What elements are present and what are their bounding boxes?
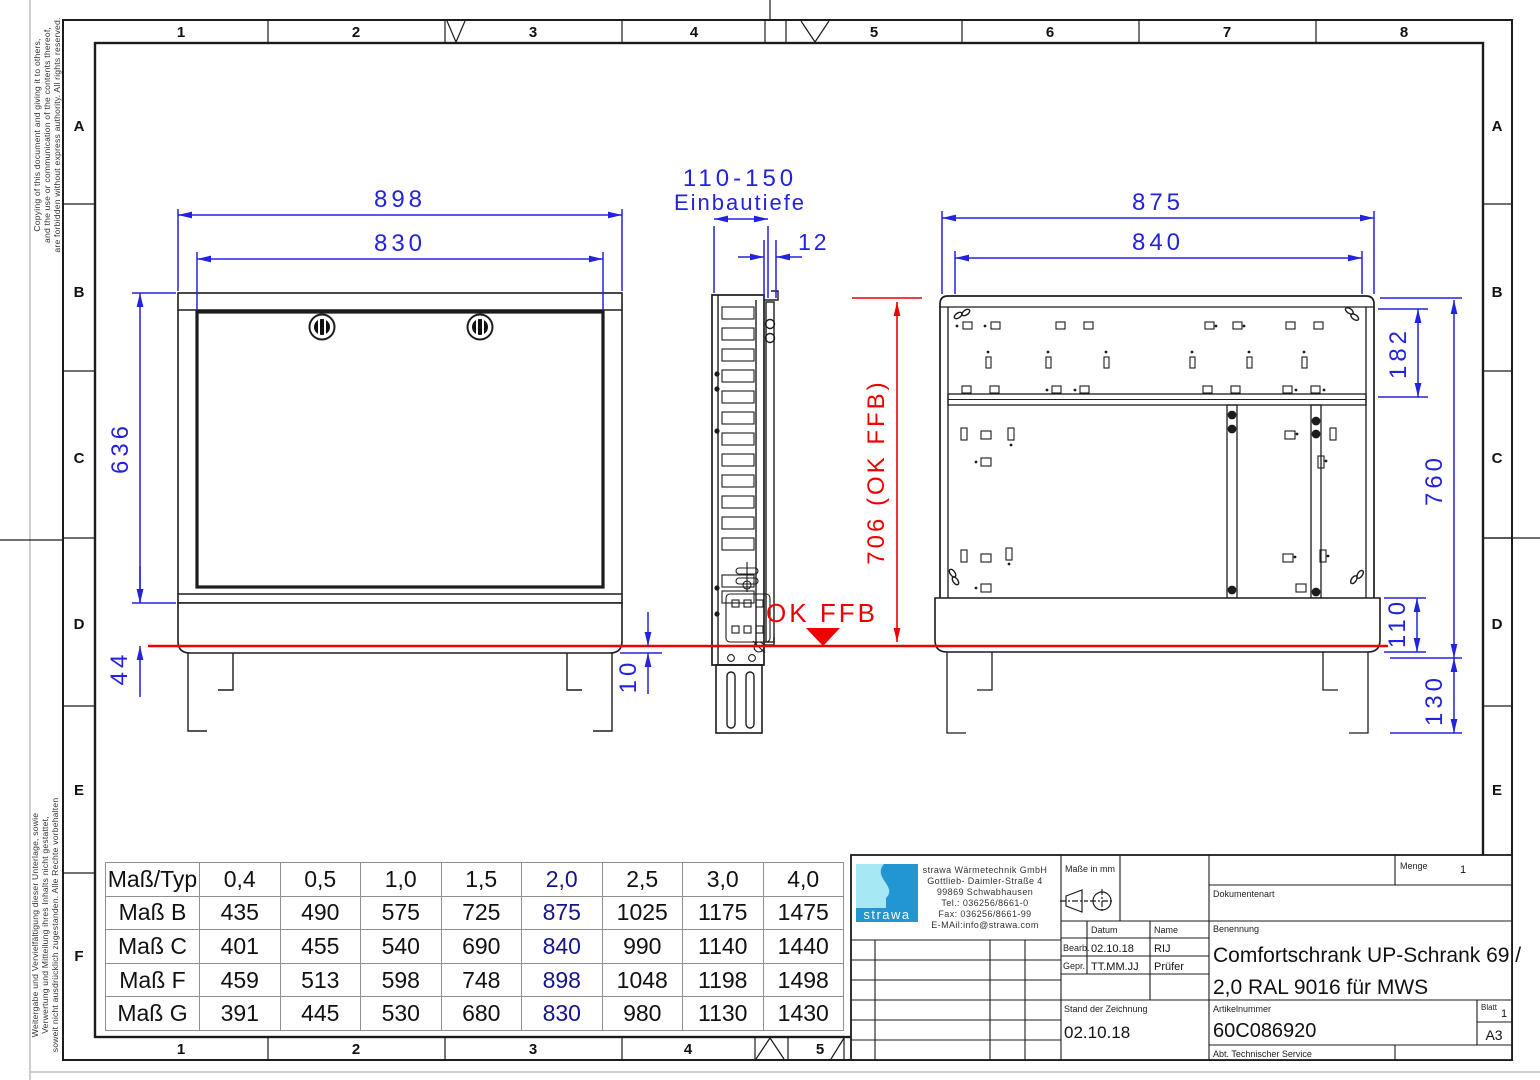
dim-front-outer: 898 bbox=[374, 186, 426, 213]
rear-legs bbox=[947, 652, 1368, 733]
dimensions bbox=[132, 209, 1462, 733]
front-legs bbox=[188, 653, 612, 731]
units-label: Maße in mm bbox=[1065, 864, 1115, 874]
table-header-cell-highlighted: 2,0 bbox=[522, 863, 603, 897]
company-line: 99869 Schwabhausen bbox=[937, 887, 1033, 897]
row-label: E bbox=[74, 782, 84, 799]
table-cell: 1198 bbox=[683, 963, 764, 997]
table-header-cell: 4,0 bbox=[763, 863, 844, 897]
floor-label: OK FFB bbox=[766, 598, 878, 628]
gepr-label: Gepr. bbox=[1063, 961, 1085, 971]
menge-value: 1 bbox=[1460, 864, 1466, 876]
company-line: Fax: 036256/8661-99 bbox=[938, 909, 1031, 919]
table-cell: 459 bbox=[200, 963, 281, 997]
dim-front-door: 830 bbox=[374, 230, 426, 257]
table-header-cell: 0,5 bbox=[280, 863, 361, 897]
col-label: 8 bbox=[1400, 24, 1408, 41]
side-view bbox=[712, 291, 778, 733]
side-legs bbox=[716, 665, 762, 733]
datum-height-label: 706 (OK FFB) bbox=[863, 379, 890, 564]
notice-line: and the use or communication of the cont… bbox=[42, 27, 52, 243]
table-cell: 725 bbox=[441, 896, 522, 930]
side-rungs bbox=[722, 307, 754, 603]
artikelnummer-value: 60C086920 bbox=[1213, 1020, 1316, 1042]
notice-line: soweit nicht ausdrücklich zugestanden. A… bbox=[50, 798, 60, 1053]
rear-vertical-rails bbox=[1227, 405, 1321, 598]
table-cell: 990 bbox=[602, 930, 683, 964]
col-label: 4 bbox=[690, 24, 699, 41]
table-cell: 490 bbox=[280, 896, 361, 930]
size-table: Maß/Typ 0,4 0,5 1,0 1,5 2,0 2,5 3,0 4,0 … bbox=[105, 862, 844, 1031]
drawing-sheet: 1 2 3 4 5 6 7 8 1 2 3 4 5 A B C D E F A … bbox=[0, 0, 1540, 1080]
table-header-cell: 3,0 bbox=[683, 863, 764, 897]
row-label: C bbox=[74, 450, 85, 467]
notice-line: Verwertung und Mitteilung ihres Inhalts … bbox=[40, 816, 50, 1034]
table-cell: 391 bbox=[200, 997, 281, 1031]
row-label-cell: Maß C bbox=[106, 930, 200, 964]
col-label: 3 bbox=[529, 1041, 537, 1058]
benennung-line1: Comfortschrank UP-Schrank 69 / bbox=[1213, 944, 1521, 967]
table-cell: 690 bbox=[441, 930, 522, 964]
company-line: Gottlieb- Daimler-Straße 4 bbox=[927, 876, 1042, 886]
benennung-label: Benennung bbox=[1213, 924, 1259, 934]
rear-base bbox=[935, 598, 1380, 652]
table-header-cell: Maß/Typ bbox=[106, 863, 200, 897]
table-header-row: Maß/Typ 0,4 0,5 1,0 1,5 2,0 2,5 3,0 4,0 bbox=[106, 863, 844, 897]
table-cell: 401 bbox=[200, 930, 281, 964]
front-view bbox=[178, 293, 622, 731]
table-cell: 980 bbox=[602, 997, 683, 1031]
col-label: 2 bbox=[352, 24, 360, 41]
row-label: B bbox=[74, 284, 85, 301]
rear-rail bbox=[948, 394, 1366, 405]
table-row: Maß G 391 445 530 680 830 980 1130 1430 bbox=[106, 997, 844, 1031]
table-header-cell: 2,5 bbox=[602, 863, 683, 897]
table-cell: 455 bbox=[280, 930, 361, 964]
table-cell: 513 bbox=[280, 963, 361, 997]
company-line: Tel.: 036256/8661-0 bbox=[941, 898, 1028, 908]
table-cell: 530 bbox=[361, 997, 442, 1031]
table-cell-highlighted: 875 bbox=[522, 896, 603, 930]
dim-rear-outer: 875 bbox=[1132, 189, 1184, 216]
table-header-cell: 1,5 bbox=[441, 863, 522, 897]
notice-line: Weitergabe und Vervielfältigung dieser U… bbox=[30, 813, 40, 1037]
table-cell: 435 bbox=[200, 896, 281, 930]
company-line: strawa Wärmetechnik GmbH bbox=[923, 865, 1048, 875]
dim-side-depth-label: Einbautiefe bbox=[674, 190, 806, 215]
datum-col-label: Datum bbox=[1091, 925, 1118, 935]
front-door bbox=[197, 312, 603, 587]
table-cell-highlighted: 840 bbox=[522, 930, 603, 964]
strawa-logo: strawa bbox=[856, 864, 918, 922]
col-label: 1 bbox=[177, 24, 185, 41]
bearb-date: 02.10.18 bbox=[1091, 943, 1134, 955]
row-label: D bbox=[74, 616, 85, 633]
row-label: E bbox=[1492, 782, 1502, 799]
company-line: E-MAil:info@strawa.com bbox=[931, 920, 1038, 930]
row-label: A bbox=[1492, 118, 1503, 135]
col-label: 3 bbox=[529, 24, 537, 41]
artikelnummer-label: Artikelnummer bbox=[1213, 1004, 1271, 1014]
menge-label: Menge bbox=[1400, 861, 1428, 871]
row-label-cell: Maß G bbox=[106, 997, 200, 1031]
table-cell: 1430 bbox=[763, 997, 844, 1031]
table-cell: 575 bbox=[361, 896, 442, 930]
bearb-label: Bearb. bbox=[1063, 943, 1090, 953]
table-cell: 1140 bbox=[683, 930, 764, 964]
col-label: 2 bbox=[352, 1041, 360, 1058]
gepr-date: TT.MM.JJ bbox=[1091, 961, 1139, 973]
dim-rear-height: 760 bbox=[1421, 454, 1448, 506]
table-cell: 1498 bbox=[763, 963, 844, 997]
dim-side-door: 12 bbox=[798, 229, 830, 255]
table-row: Maß F 459 513 598 748 898 1048 1198 1498 bbox=[106, 963, 844, 997]
row-label: A bbox=[74, 118, 85, 135]
copyright-notice-top: Copying of this document and giving it t… bbox=[32, 17, 62, 252]
dim-rear-top-zone: 182 bbox=[1385, 327, 1412, 379]
dim-front-height: 636 bbox=[107, 422, 134, 474]
rear-knockouts bbox=[961, 322, 1336, 592]
dim-side-depth: 110-150 bbox=[683, 165, 797, 192]
row-label: F bbox=[74, 948, 83, 965]
dim-rear-leg: 130 bbox=[1421, 674, 1448, 726]
stand-label: Stand der Zeichnung bbox=[1064, 1004, 1148, 1014]
table-cell: 1175 bbox=[683, 896, 764, 930]
table-cell: 1475 bbox=[763, 896, 844, 930]
dim-front-gap: 10 bbox=[615, 659, 642, 694]
dim-front-base: 44 bbox=[106, 651, 133, 686]
table-cell: 1025 bbox=[602, 896, 683, 930]
copyright-notice-bottom: Weitergabe und Vervielfältigung dieser U… bbox=[30, 798, 60, 1053]
table-row: Maß B 435 490 575 725 875 1025 1175 1475 bbox=[106, 896, 844, 930]
table-cell: 598 bbox=[361, 963, 442, 997]
blatt-value: 1 bbox=[1501, 1008, 1507, 1020]
dokumentenart-label: Dokumentenart bbox=[1213, 889, 1275, 899]
table-cell: 748 bbox=[441, 963, 522, 997]
abt-label: Abt. Technischer Service bbox=[1213, 1049, 1312, 1059]
dim-rear-inner: 840 bbox=[1132, 229, 1184, 256]
door-lock-left bbox=[310, 315, 335, 340]
name-col-label: Name bbox=[1154, 925, 1178, 935]
table-cell: 1130 bbox=[683, 997, 764, 1031]
row-label-cell: Maß F bbox=[106, 963, 200, 997]
side-door-panel bbox=[766, 302, 774, 642]
col-label: 5 bbox=[816, 1041, 824, 1058]
row-label: C bbox=[1492, 450, 1503, 467]
table-cell: 680 bbox=[441, 997, 522, 1031]
table-cell-highlighted: 898 bbox=[522, 963, 603, 997]
col-label: 6 bbox=[1046, 24, 1054, 41]
format-value: A3 bbox=[1485, 1027, 1502, 1043]
stand-value: 02.10.18 bbox=[1064, 1023, 1130, 1042]
benennung-line2: 2,0 RAL 9016 für MWS bbox=[1213, 976, 1428, 999]
row-label: B bbox=[1492, 284, 1503, 301]
table-cell-highlighted: 830 bbox=[522, 997, 603, 1031]
dim-rear-base: 110 bbox=[1384, 598, 1411, 648]
table-cell: 1440 bbox=[763, 930, 844, 964]
table-header-cell: 1,0 bbox=[361, 863, 442, 897]
table-cell: 1048 bbox=[602, 963, 683, 997]
table-cell: 445 bbox=[280, 997, 361, 1031]
col-label: 1 bbox=[177, 1041, 185, 1058]
notice-line: Copying of this document and giving it t… bbox=[32, 38, 42, 231]
table-header-cell: 0,4 bbox=[200, 863, 281, 897]
side-clips bbox=[714, 371, 719, 616]
row-label: D bbox=[1492, 616, 1503, 633]
col-label: 5 bbox=[870, 24, 878, 41]
title-block: strawa strawa Wärmetechnik GmbH Gottlieb… bbox=[851, 855, 1521, 1060]
bearb-name: RIJ bbox=[1154, 943, 1171, 955]
blatt-label: Blatt bbox=[1481, 1003, 1498, 1012]
logo-text: strawa bbox=[863, 907, 910, 922]
col-label: 4 bbox=[684, 1041, 693, 1058]
table-row: Maß C 401 455 540 690 840 990 1140 1440 bbox=[106, 930, 844, 964]
col-label: 7 bbox=[1223, 24, 1231, 41]
gepr-name: Prüfer bbox=[1154, 961, 1184, 973]
door-lock-right bbox=[468, 315, 493, 340]
rear-view bbox=[935, 296, 1380, 733]
notice-line: are forbidden without express authority.… bbox=[52, 17, 62, 252]
table-cell: 540 bbox=[361, 930, 442, 964]
row-label-cell: Maß B bbox=[106, 896, 200, 930]
